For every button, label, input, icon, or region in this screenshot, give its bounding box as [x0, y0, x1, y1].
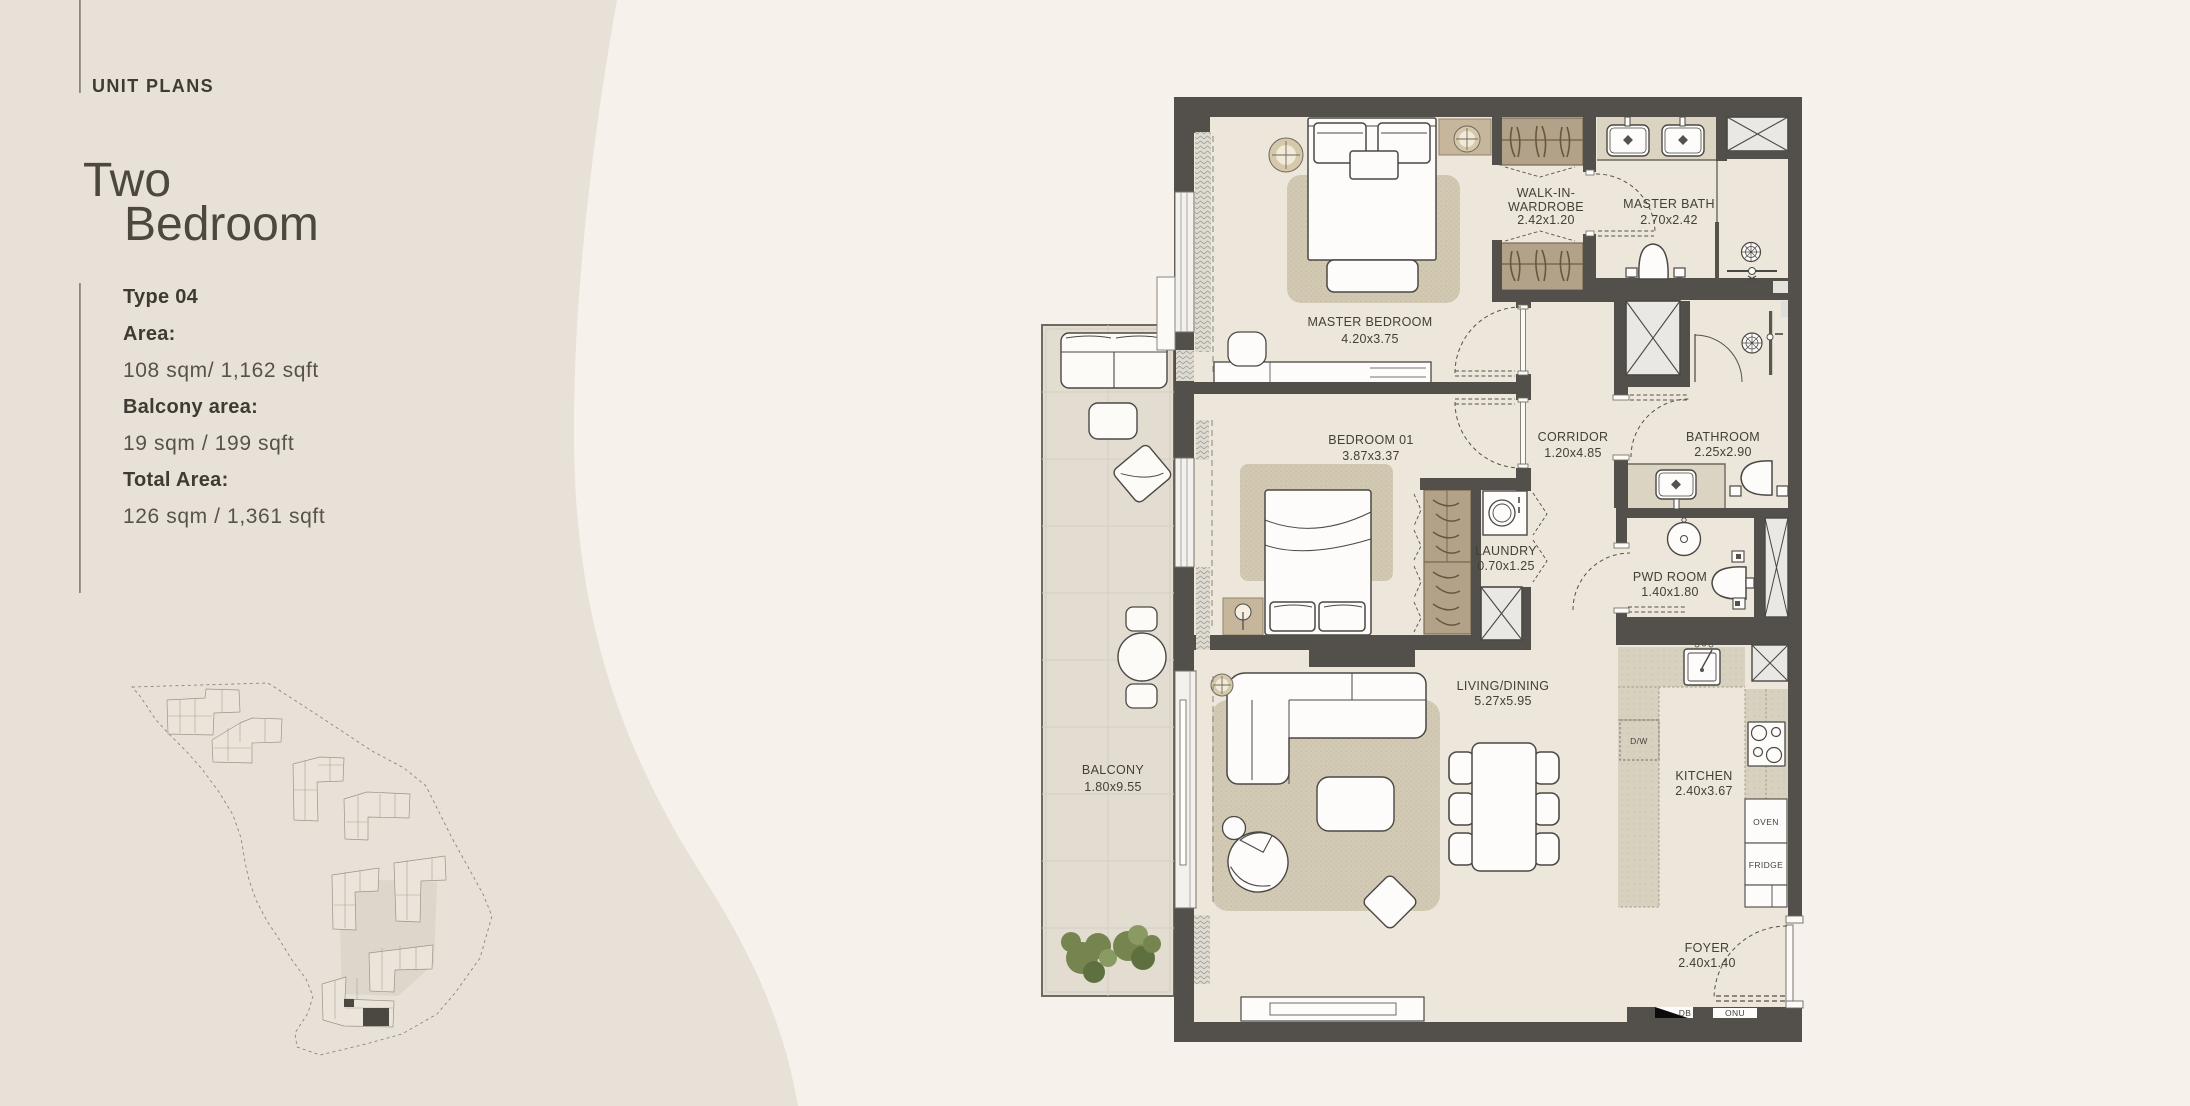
- svg-text:BALCONY: BALCONY: [1082, 763, 1145, 777]
- svg-text:MASTER BATH: MASTER BATH: [1623, 197, 1715, 211]
- svg-text:1.20x4.85: 1.20x4.85: [1544, 446, 1602, 460]
- svg-text:FOYER: FOYER: [1685, 941, 1730, 955]
- svg-text:Bedroom: Bedroom: [124, 198, 319, 251]
- svg-text:19 sqm / 199 sqft: 19 sqm / 199 sqft: [123, 432, 294, 455]
- svg-text:UNIT PLANS: UNIT PLANS: [92, 76, 214, 96]
- svg-text:Area:: Area:: [123, 323, 176, 345]
- svg-text:WARDROBE: WARDROBE: [1508, 200, 1584, 214]
- svg-text:3.87x3.37: 3.87x3.37: [1342, 449, 1400, 463]
- svg-text:2.40x3.67: 2.40x3.67: [1675, 784, 1733, 798]
- svg-text:4.20x3.75: 4.20x3.75: [1341, 332, 1399, 346]
- svg-text:OVEN: OVEN: [1753, 817, 1779, 827]
- svg-text:FRIDGE: FRIDGE: [1749, 860, 1784, 870]
- svg-text:BATHROOM: BATHROOM: [1686, 430, 1760, 444]
- svg-text:DB: DB: [1679, 1008, 1692, 1018]
- svg-text:5.27x5.95: 5.27x5.95: [1474, 694, 1532, 708]
- svg-text:LIVING/DINING: LIVING/DINING: [1457, 679, 1550, 693]
- svg-text:126 sqm / 1,361 sqft: 126 sqm / 1,361 sqft: [123, 505, 325, 528]
- svg-text:2.40x1.40: 2.40x1.40: [1678, 956, 1736, 970]
- svg-text:2.42x1.20: 2.42x1.20: [1517, 213, 1575, 227]
- svg-text:1.80x9.55: 1.80x9.55: [1084, 780, 1142, 794]
- svg-text:MASTER BEDROOM: MASTER BEDROOM: [1307, 315, 1432, 329]
- svg-text:Type 04: Type 04: [123, 286, 199, 308]
- svg-text:LAUNDRY: LAUNDRY: [1475, 544, 1537, 558]
- svg-text:WALK-IN-: WALK-IN-: [1517, 186, 1576, 200]
- svg-text:D/W: D/W: [1630, 736, 1648, 746]
- svg-text:1.40x1.80: 1.40x1.80: [1641, 585, 1699, 599]
- svg-text:Balcony area:: Balcony area:: [123, 396, 258, 418]
- svg-text:Total Area:: Total Area:: [123, 469, 229, 491]
- svg-text:KITCHEN: KITCHEN: [1675, 769, 1732, 783]
- svg-text:PWD ROOM: PWD ROOM: [1633, 570, 1707, 584]
- svg-text:2.25x2.90: 2.25x2.90: [1694, 445, 1752, 459]
- svg-text:BEDROOM 01: BEDROOM 01: [1328, 433, 1413, 447]
- svg-text:2.70x2.42: 2.70x2.42: [1640, 213, 1698, 227]
- svg-text:ONU: ONU: [1725, 1008, 1745, 1018]
- svg-text:0.70x1.25: 0.70x1.25: [1477, 559, 1535, 573]
- svg-text:CORRIDOR: CORRIDOR: [1538, 430, 1609, 444]
- svg-text:108 sqm/ 1,162 sqft: 108 sqm/ 1,162 sqft: [123, 359, 319, 382]
